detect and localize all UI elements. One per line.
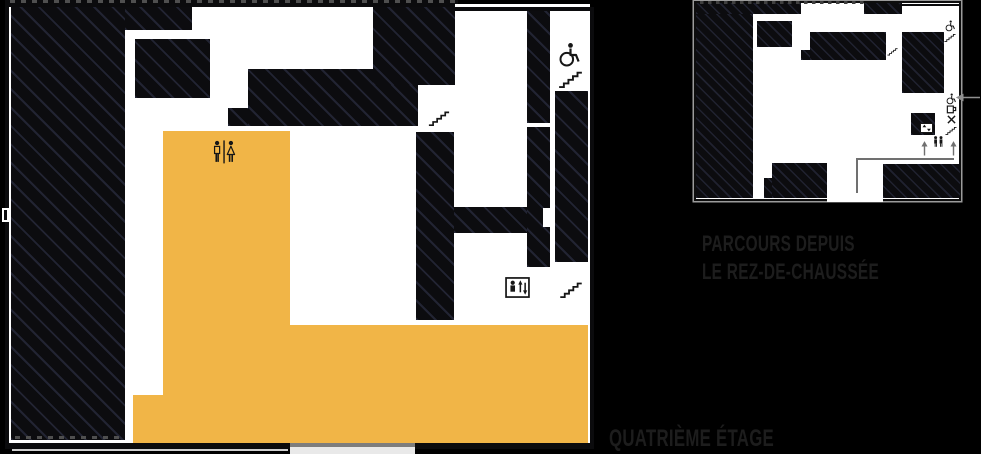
stairs-icon xyxy=(559,281,583,298)
route-mini-map xyxy=(0,0,981,210)
route-caption-line1: PARCOURS DEPUIS xyxy=(702,230,879,258)
border-bottom-hairline xyxy=(12,449,288,451)
route-caption: PARCOURS DEPUIS LE REZ-DE-CHAUSSÉE xyxy=(702,230,879,286)
mini-block-wide-step xyxy=(801,50,810,60)
mini-block-room xyxy=(757,21,792,47)
mini-wall-line xyxy=(900,4,960,6)
elevator-icon xyxy=(920,123,933,133)
wheelchair-icon xyxy=(944,20,956,32)
mini-block-top-right xyxy=(864,3,902,14)
entrance-notch-bottom xyxy=(290,447,415,454)
mini-entrance-gap xyxy=(827,196,883,202)
mini-block-top-bar xyxy=(696,3,801,14)
restrooms-icon xyxy=(932,136,945,147)
mini-block-bottom-right xyxy=(883,164,960,198)
mini-block-bottom-left-nub xyxy=(764,178,772,198)
stairs-icon xyxy=(944,33,956,42)
mini-block-right xyxy=(902,32,944,93)
mini-block-bottom-left xyxy=(772,163,827,198)
route-arrow-up-icon xyxy=(950,138,957,159)
route-caption-line2: LE REZ-DE-CHAUSSÉE xyxy=(702,258,879,286)
stairs-icon xyxy=(887,47,898,56)
border-left-notch-core xyxy=(4,210,7,220)
window-dashes-bottom xyxy=(15,436,121,439)
mini-block-left xyxy=(696,3,753,198)
wheelchair-icon xyxy=(945,93,957,105)
cafe-icon xyxy=(946,105,957,114)
block-center-arm xyxy=(454,207,528,233)
route-arrow-up-icon xyxy=(921,138,928,159)
elevator-icon xyxy=(505,277,530,298)
door-notch xyxy=(543,208,555,227)
mini-block-wide xyxy=(810,32,886,60)
route-line-vertical xyxy=(856,158,858,193)
floor-label: QUATRIÈME ÉTAGE xyxy=(609,426,774,452)
restaurant-icon xyxy=(947,115,956,124)
floor-plan-page: PARCOURS DEPUIS LE REZ-DE-CHAUSSÉE QUATR… xyxy=(0,0,981,454)
stairs-icon xyxy=(945,126,957,135)
route-line-horizontal xyxy=(856,158,954,160)
entrance-arrow-icon xyxy=(955,93,981,102)
mini-window-dashes xyxy=(700,1,864,4)
